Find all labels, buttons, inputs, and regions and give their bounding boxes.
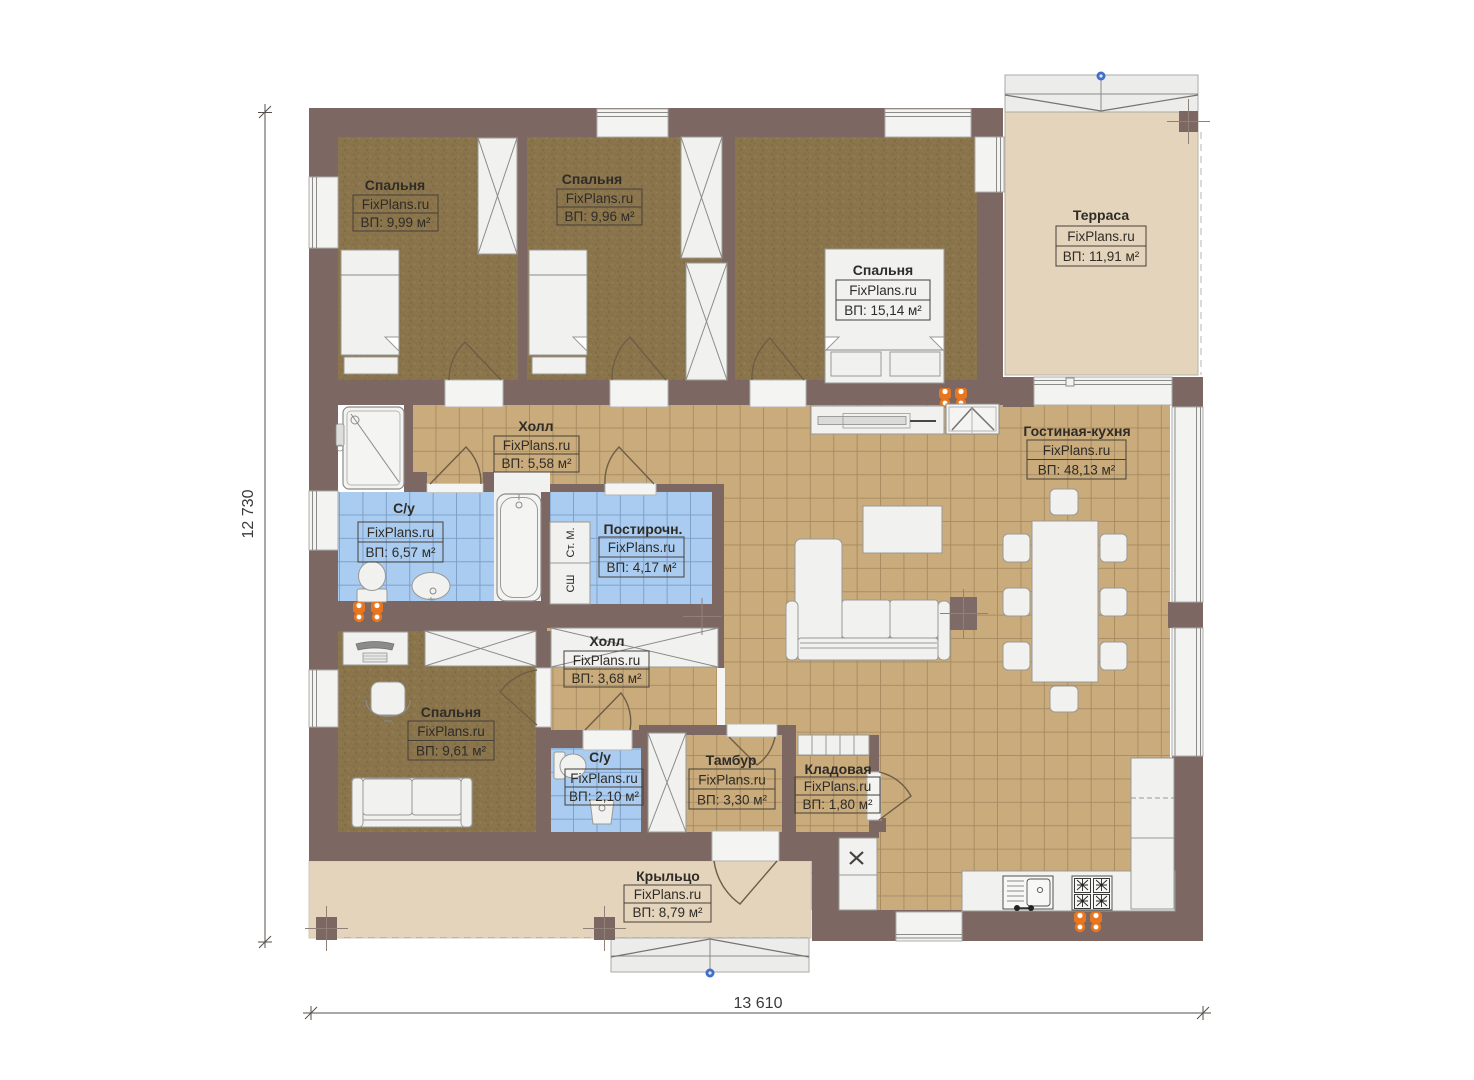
svg-text:Постирочн.: Постирочн. (604, 521, 683, 537)
svg-text:Терраса: Терраса (1073, 207, 1129, 223)
svg-text:С/у: С/у (589, 749, 611, 765)
svg-text:Тамбур: Тамбур (706, 752, 757, 768)
svg-text:Кладовая: Кладовая (804, 761, 871, 777)
svg-text:Спальня: Спальня (853, 262, 913, 278)
svg-text:Холл: Холл (589, 633, 624, 649)
svg-text:FixPlans.ru: FixPlans.ru (1043, 443, 1111, 458)
svg-text:Холл: Холл (518, 418, 553, 434)
svg-text:FixPlans.ru: FixPlans.ru (566, 191, 634, 206)
svg-text:FixPlans.ru: FixPlans.ru (634, 887, 702, 902)
svg-text:FixPlans.ru: FixPlans.ru (1067, 229, 1135, 244)
svg-text:ВП: 2,10 м²: ВП: 2,10 м² (569, 789, 640, 804)
svg-text:ВП: 9,96 м²: ВП: 9,96 м² (564, 209, 635, 224)
svg-text:FixPlans.ru: FixPlans.ru (570, 771, 638, 786)
svg-text:FixPlans.ru: FixPlans.ru (608, 540, 676, 555)
svg-text:ВП: 15,14 м²: ВП: 15,14 м² (844, 303, 922, 318)
svg-text:ВП: 5,58 м²: ВП: 5,58 м² (501, 456, 572, 471)
svg-text:СШ: СШ (565, 574, 577, 592)
svg-text:FixPlans.ru: FixPlans.ru (804, 779, 872, 794)
svg-text:FixPlans.ru: FixPlans.ru (362, 197, 430, 212)
svg-text:ВП: 3,68 м²: ВП: 3,68 м² (571, 671, 642, 686)
svg-text:FixPlans.ru: FixPlans.ru (367, 525, 435, 540)
svg-text:FixPlans.ru: FixPlans.ru (417, 724, 485, 739)
svg-text:С/у: С/у (393, 500, 415, 516)
svg-text:ВП: 8,79 м²: ВП: 8,79 м² (632, 905, 703, 920)
svg-text:ВП: 3,30 м²: ВП: 3,30 м² (697, 793, 768, 808)
svg-text:FixPlans.ru: FixPlans.ru (849, 283, 917, 298)
svg-text:ВП: 9,61 м²: ВП: 9,61 м² (416, 744, 487, 759)
svg-text:Спальня: Спальня (421, 704, 481, 720)
svg-text:12 730: 12 730 (240, 489, 257, 538)
svg-text:Крыльцо: Крыльцо (636, 868, 700, 884)
svg-text:13 610: 13 610 (734, 995, 783, 1012)
svg-text:Ст. М.: Ст. М. (565, 527, 577, 557)
svg-text:FixPlans.ru: FixPlans.ru (698, 773, 766, 788)
svg-text:Спальня: Спальня (562, 171, 622, 187)
svg-text:ВП: 4,17 м²: ВП: 4,17 м² (606, 560, 677, 575)
svg-text:FixPlans.ru: FixPlans.ru (573, 653, 641, 668)
svg-text:ВП: 48,13 м²: ВП: 48,13 м² (1038, 463, 1116, 478)
svg-text:Гостиная-кухня: Гостиная-кухня (1023, 423, 1130, 439)
svg-text:FixPlans.ru: FixPlans.ru (503, 438, 571, 453)
svg-text:ВП: 9,99 м²: ВП: 9,99 м² (360, 215, 431, 230)
svg-text:ВП: 11,91 м²: ВП: 11,91 м² (1063, 249, 1140, 264)
svg-text:Спальня: Спальня (365, 177, 425, 193)
svg-text:ВП: 1,80 м²: ВП: 1,80 м² (802, 797, 873, 812)
svg-text:ВП: 6,57 м²: ВП: 6,57 м² (365, 545, 436, 560)
